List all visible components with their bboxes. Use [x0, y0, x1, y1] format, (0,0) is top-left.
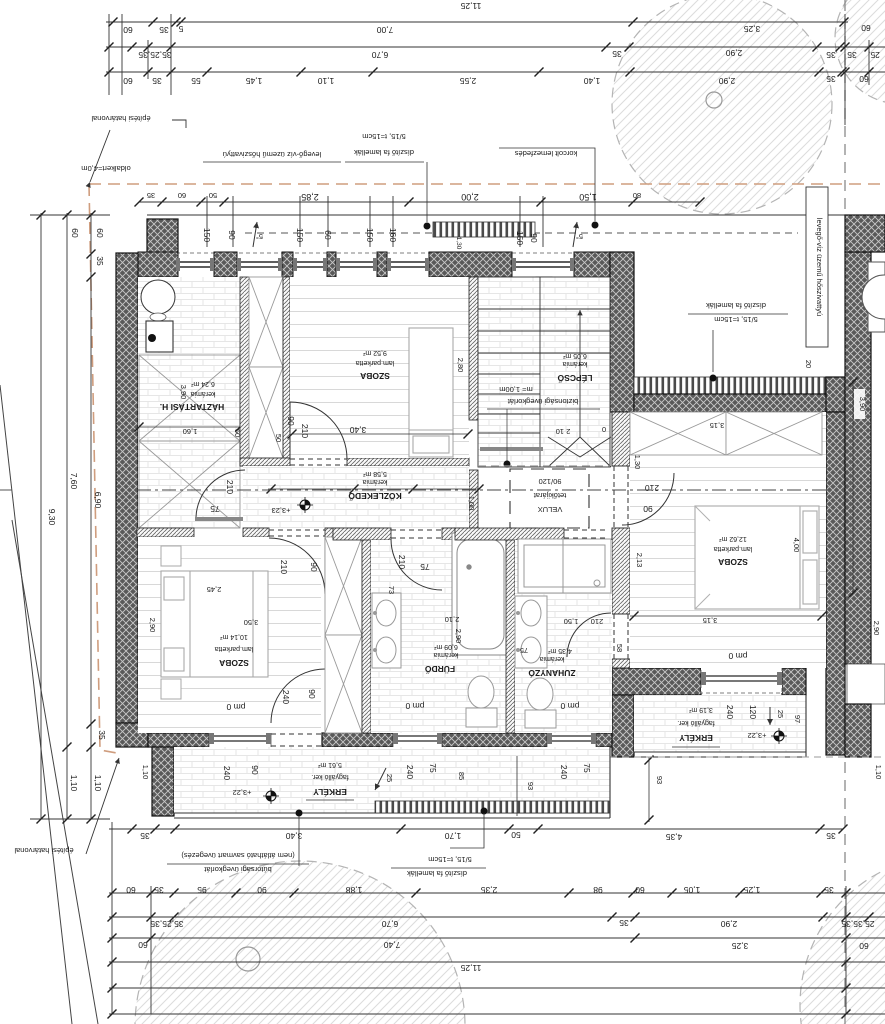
svg-text:2,00: 2,00	[461, 192, 479, 202]
svg-text:1,25: 1,25	[743, 885, 760, 895]
svg-text:1,10: 1,10	[874, 765, 883, 780]
svg-text:fagyálló ker.: fagyálló ker.	[677, 719, 714, 726]
svg-text:ERKÉLY: ERKÉLY	[679, 733, 713, 743]
svg-text:pm 0: pm 0	[728, 651, 747, 661]
svg-text:3,15: 3,15	[710, 421, 725, 430]
svg-text:pm 0: pm 0	[226, 702, 245, 712]
svg-text:1,50: 1,50	[579, 192, 597, 202]
svg-text:25,35,35: 25,35,35	[841, 919, 874, 929]
svg-text:60: 60	[123, 25, 133, 35]
svg-text:1,10: 1,10	[141, 765, 150, 780]
svg-text:SZOBA: SZOBA	[219, 658, 249, 668]
svg-text:60: 60	[123, 76, 133, 86]
svg-text:kerámia: kerámia	[362, 478, 387, 485]
svg-text:5/15, t=15cm: 5/15, t=15cm	[428, 855, 472, 864]
svg-text:9,52 m²: 9,52 m²	[362, 349, 386, 356]
svg-text:2,90: 2,90	[720, 919, 737, 929]
svg-text:85: 85	[457, 772, 466, 780]
svg-text:lam.parketta: lam.parketta	[215, 645, 254, 652]
svg-text:LÉPCSŐ: LÉPCSŐ	[557, 373, 592, 384]
svg-text:5/15, t=15cm: 5/15, t=15cm	[714, 315, 758, 324]
svg-text:35: 35	[826, 831, 836, 841]
svg-text:tetőkijárat: tetőkijárat	[533, 491, 566, 500]
svg-text:90: 90	[643, 504, 653, 514]
svg-text:90: 90	[286, 416, 296, 426]
svg-text:75: 75	[210, 504, 220, 514]
svg-text:2,90: 2,90	[148, 618, 157, 633]
svg-text:90: 90	[309, 562, 319, 572]
svg-text:pm 0: pm 0	[560, 701, 579, 711]
svg-text:240: 240	[405, 765, 415, 779]
svg-text:210: 210	[225, 480, 235, 494]
svg-text:35: 35	[826, 74, 836, 84]
svg-text:80: 80	[633, 191, 641, 200]
svg-text:1,45: 1,45	[245, 76, 262, 86]
svg-text:150: 150	[202, 228, 212, 242]
svg-text:2,10: 2,10	[445, 615, 460, 624]
svg-text:építési határvonal: építési határvonal	[14, 846, 74, 855]
svg-text:oldalkert=4,0m: oldalkert=4,0m	[81, 164, 130, 173]
svg-text:240: 240	[559, 765, 569, 779]
svg-text:75: 75	[582, 763, 592, 773]
svg-text:3,90: 3,90	[858, 397, 867, 412]
svg-text:3,19 m²: 3,19 m²	[688, 706, 712, 713]
svg-text:3,40: 3,40	[285, 831, 302, 841]
svg-text:9,30: 9,30	[47, 509, 57, 526]
svg-text:+3,23: +3,23	[272, 506, 291, 515]
svg-text:35: 35	[826, 50, 836, 60]
svg-text:FÜRDŐ: FÜRDŐ	[425, 664, 456, 675]
svg-text:35: 35	[612, 49, 622, 59]
svg-text:11,25: 11,25	[460, 1, 481, 11]
svg-text:1,60: 1,60	[183, 427, 198, 436]
svg-text:210: 210	[645, 483, 659, 493]
svg-text:150: 150	[515, 231, 525, 245]
svg-text:35,25,35: 35,25,35	[150, 919, 183, 929]
svg-text:35: 35	[140, 831, 150, 841]
svg-text:ERKÉLY: ERKÉLY	[313, 787, 347, 797]
svg-text:35: 35	[97, 730, 107, 740]
svg-text:díszítő fa lamellák: díszítő fa lamellák	[407, 869, 467, 878]
svg-text:4,00: 4,00	[792, 538, 801, 553]
svg-text:2 10: 2 10	[556, 427, 571, 436]
svg-text:35: 35	[824, 885, 834, 895]
svg-text:1,30: 1,30	[633, 455, 642, 470]
svg-text:60: 60	[95, 228, 105, 238]
svg-text:3,90: 3,90	[179, 385, 188, 400]
svg-text:(nem átlátható savmart üvegezé: (nem átlátható savmart üvegezés)	[181, 851, 295, 860]
svg-text:díszítő fa lamellák: díszítő fa lamellák	[354, 148, 414, 157]
svg-text:2,85: 2,85	[301, 192, 319, 202]
svg-text:60: 60	[178, 191, 186, 200]
svg-text:1,30: 1,30	[455, 237, 462, 250]
svg-text:építési határvonal: építési határvonal	[91, 114, 151, 123]
svg-text:3,15: 3,15	[703, 616, 718, 625]
svg-text:3,25: 3,25	[731, 941, 748, 951]
svg-text:1,10: 1,10	[317, 76, 334, 86]
svg-text:lam.parketta: lam.parketta	[714, 545, 753, 552]
svg-text:95: 95	[197, 885, 207, 895]
svg-text:90: 90	[529, 233, 539, 243]
svg-text:6,90: 6,90	[93, 492, 103, 509]
svg-text:240: 240	[222, 766, 232, 780]
svg-text:6,09 m²: 6,09 m²	[433, 643, 457, 650]
svg-text:50: 50	[274, 434, 283, 442]
svg-text:7,40: 7,40	[383, 940, 400, 950]
svg-text:210: 210	[279, 560, 289, 574]
svg-text:3,25: 3,25	[743, 24, 760, 34]
svg-text:60: 60	[635, 885, 645, 895]
svg-text:levegő-víz üzemű hőszivattyú: levegő-víz üzemű hőszivattyú	[815, 218, 824, 316]
svg-text:4,35: 4,35	[665, 832, 682, 842]
svg-text:6,70: 6,70	[381, 919, 398, 929]
svg-text:1,40: 1,40	[583, 76, 600, 86]
svg-text:5/15, t=15cm: 5/15, t=15cm	[362, 132, 406, 141]
svg-text:90: 90	[250, 765, 260, 775]
svg-text:10,14 m²: 10,14 m²	[220, 633, 248, 640]
svg-text:6,05 m²: 6,05 m²	[562, 352, 586, 359]
svg-text:75: 75	[420, 562, 430, 572]
svg-text:90: 90	[227, 230, 237, 240]
svg-text:6,24 m²: 6,24 m²	[190, 380, 214, 387]
svg-text:2,90: 2,90	[718, 76, 735, 86]
svg-text:90: 90	[257, 885, 267, 895]
svg-text:kerámia: kerámia	[539, 655, 564, 662]
svg-text:m= 1,00m: m= 1,00m	[499, 385, 533, 394]
svg-text:2,90: 2,90	[725, 48, 742, 58]
svg-text:KÖZLEKEDŐ: KÖZLEKEDŐ	[348, 491, 402, 502]
svg-text:240: 240	[281, 690, 291, 704]
svg-text:97: 97	[793, 715, 802, 723]
svg-text:2,45: 2,45	[207, 585, 222, 594]
svg-text:90: 90	[307, 689, 317, 699]
svg-text:2,13: 2,13	[635, 553, 644, 568]
svg-text:5,61 m²: 5,61 m²	[317, 761, 341, 768]
svg-text:60: 60	[859, 941, 869, 951]
svg-text:SZOBA: SZOBA	[360, 371, 390, 381]
svg-text:35: 35	[152, 76, 162, 86]
svg-text:biztonsági üvegkorlát: biztonsági üvegkorlát	[507, 397, 578, 406]
svg-text:20: 20	[804, 360, 813, 368]
svg-text:+3,22: +3,22	[233, 788, 252, 797]
svg-text:60: 60	[323, 230, 333, 240]
svg-text:25: 25	[385, 774, 394, 782]
svg-text:2,90: 2,90	[872, 621, 881, 636]
svg-text:210: 210	[591, 617, 604, 626]
svg-text:kerámia: kerámia	[433, 651, 458, 658]
svg-text:kerámia: kerámia	[190, 390, 215, 397]
svg-text:60: 60	[126, 885, 136, 895]
svg-text:7,00: 7,00	[376, 25, 393, 35]
svg-text:1,10: 1,10	[93, 775, 103, 792]
svg-text:3,50: 3,50	[244, 618, 259, 627]
svg-text:35: 35	[619, 918, 629, 928]
svg-text:93: 93	[526, 782, 535, 790]
svg-text:ZUHANYZÓ: ZUHANYZÓ	[528, 668, 576, 679]
svg-text:93: 93	[655, 776, 664, 784]
svg-text:75: 75	[428, 763, 438, 773]
svg-text:98: 98	[593, 885, 603, 895]
svg-text:35,25,35: 35,25,35	[138, 50, 171, 60]
svg-text:60: 60	[859, 74, 869, 84]
svg-text:levegő-víz üzemű hőszivattyú: levegő-víz üzemű hőszivattyú	[223, 150, 321, 159]
svg-text:6,70: 6,70	[371, 50, 388, 60]
svg-text:korcolt lemezfedés: korcolt lemezfedés	[514, 149, 577, 158]
svg-text:fagyálló ker.: fagyálló ker.	[311, 773, 348, 780]
svg-text:1,88: 1,88	[345, 885, 362, 895]
svg-text:díszítő fa lamellák: díszítő fa lamellák	[706, 301, 766, 310]
svg-text:120: 120	[748, 705, 758, 719]
svg-text:150: 150	[365, 228, 375, 242]
svg-text:90/120: 90/120	[539, 477, 562, 486]
svg-text:35: 35	[95, 256, 105, 266]
svg-text:60: 60	[861, 23, 871, 33]
svg-text:11,25: 11,25	[460, 963, 481, 973]
svg-text:75: 75	[520, 646, 528, 655]
svg-text:HÁZTARTÁSI H.: HÁZTARTÁSI H.	[160, 402, 225, 412]
svg-text:SZOBA: SZOBA	[718, 557, 748, 567]
svg-text:160: 160	[388, 228, 398, 242]
svg-text:lam.parketta: lam.parketta	[356, 359, 395, 366]
svg-text:73: 73	[387, 586, 396, 594]
svg-text:240: 240	[725, 705, 735, 719]
svg-text:35: 35	[159, 25, 169, 35]
svg-text:kerámia: kerámia	[562, 360, 587, 367]
svg-text:35: 35	[154, 885, 164, 895]
svg-text:pm 0: pm 0	[405, 701, 424, 711]
svg-text:35: 35	[847, 50, 857, 60]
svg-text:3,40: 3,40	[349, 425, 366, 435]
svg-text:12,62 m²: 12,62 m²	[719, 535, 747, 542]
svg-text:35: 35	[147, 191, 155, 200]
svg-text:7,60: 7,60	[69, 473, 79, 490]
svg-text:150: 150	[295, 228, 305, 242]
svg-text:2,90: 2,90	[454, 629, 463, 644]
svg-text:2,35: 2,35	[480, 885, 497, 895]
svg-text:1,00: 1,00	[467, 496, 476, 511]
svg-text:1,10: 1,10	[69, 775, 79, 792]
svg-text:1,70: 1,70	[444, 831, 461, 841]
svg-text:2,55: 2,55	[459, 76, 476, 86]
svg-text:5°: 5°	[256, 232, 263, 241]
svg-text:+3,22: +3,22	[748, 731, 767, 740]
svg-text:2,80: 2,80	[456, 358, 465, 373]
svg-text:60: 60	[138, 940, 148, 950]
svg-text:210: 210	[300, 424, 310, 438]
svg-text:50: 50	[209, 191, 217, 200]
svg-text:210: 210	[397, 555, 407, 569]
svg-text:25: 25	[776, 710, 785, 718]
svg-text:VELUX: VELUX	[538, 505, 563, 514]
svg-text:bútorsági üvegkorlát: bútorsági üvegkorlát	[203, 865, 271, 874]
svg-text:60: 60	[70, 228, 80, 238]
svg-text:58: 58	[615, 644, 624, 652]
svg-text:0: 0	[602, 425, 606, 434]
svg-text:25,: 25,	[868, 50, 880, 60]
svg-text:55: 55	[191, 76, 201, 86]
svg-text:5: 5	[178, 24, 183, 34]
svg-text:50: 50	[511, 830, 521, 840]
svg-text:5°: 5°	[576, 232, 583, 241]
svg-text:1,05: 1,05	[683, 885, 700, 895]
svg-text:1,50: 1,50	[564, 617, 579, 626]
svg-text:5,58 m²: 5,58 m²	[362, 470, 386, 477]
